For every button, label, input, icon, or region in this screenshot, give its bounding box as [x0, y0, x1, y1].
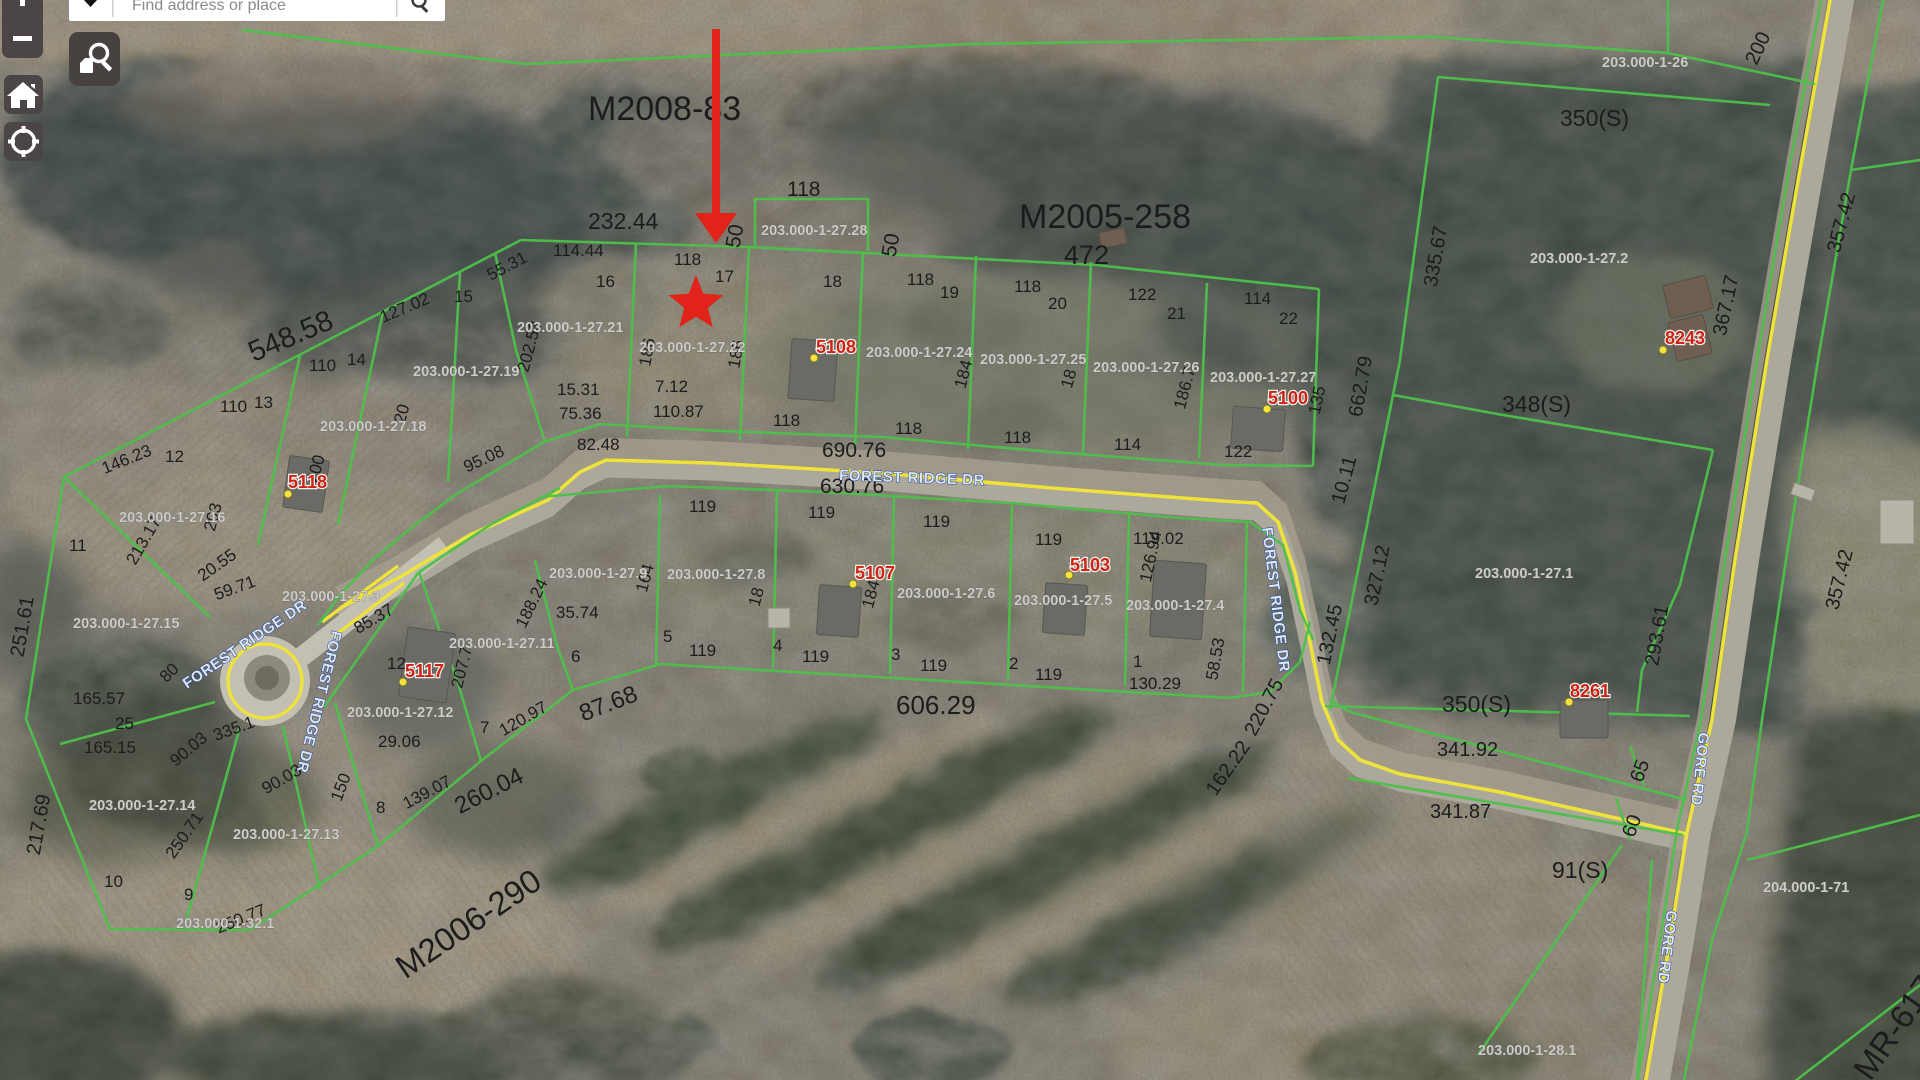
svg-text:75.36: 75.36	[559, 404, 602, 423]
svg-text:119: 119	[808, 503, 835, 522]
svg-text:29.06: 29.06	[378, 732, 421, 751]
svg-text:203.000-1-27.24: 203.000-1-27.24	[866, 345, 972, 361]
svg-text:119: 119	[689, 497, 716, 516]
svg-text:114: 114	[1244, 289, 1271, 308]
svg-text:203.000-1-27.25: 203.000-1-27.25	[980, 352, 1086, 368]
svg-text:203.000-1-27.9: 203.000-1-27.9	[549, 566, 647, 582]
svg-text:110: 110	[309, 356, 336, 375]
svg-text:203.000-1-27.26: 203.000-1-27.26	[1093, 360, 1199, 376]
svg-text:204.000-1-71: 204.000-1-71	[1763, 880, 1849, 896]
svg-text:18: 18	[823, 272, 842, 291]
svg-text:10: 10	[104, 872, 123, 891]
svg-text:203.000-1-27.11: 203.000-1-27.11	[449, 636, 555, 652]
svg-text:119: 119	[923, 512, 950, 531]
svg-text:203.000-1-27.18: 203.000-1-27.18	[320, 419, 426, 435]
svg-text:118: 118	[773, 411, 800, 430]
svg-text:7.12: 7.12	[655, 377, 688, 396]
svg-text:5: 5	[663, 627, 672, 646]
svg-text:119: 119	[689, 641, 716, 660]
svg-text:7: 7	[480, 718, 489, 737]
svg-text:11: 11	[69, 536, 87, 555]
svg-text:203.000-1-27.13: 203.000-1-27.13	[233, 827, 339, 843]
svg-text:4: 4	[773, 636, 782, 655]
svg-text:15.31: 15.31	[557, 380, 600, 399]
svg-text:21: 21	[1167, 304, 1186, 323]
svg-text:203.000-1-28.1: 203.000-1-28.1	[1478, 1043, 1576, 1059]
svg-text:203.000-1-27.14: 203.000-1-27.14	[89, 798, 195, 814]
svg-text:606.29: 606.29	[896, 690, 976, 720]
svg-text:22: 22	[1279, 309, 1298, 328]
svg-text:203.000-1-27.2: 203.000-1-27.2	[1530, 251, 1628, 267]
svg-text:118: 118	[1014, 277, 1041, 296]
svg-text:203.000-1-27.19: 203.000-1-27.19	[413, 364, 519, 380]
svg-text:232.44: 232.44	[588, 208, 659, 234]
svg-text:119: 119	[920, 656, 947, 675]
svg-text:203.000-1-26: 203.000-1-26	[1602, 55, 1688, 71]
svg-text:350(S): 350(S)	[1560, 105, 1629, 131]
svg-text:2: 2	[1009, 654, 1018, 673]
svg-text:348(S): 348(S)	[1502, 391, 1571, 417]
svg-text:690.76: 690.76	[822, 439, 886, 462]
svg-text:118: 118	[1004, 428, 1031, 447]
svg-text:118: 118	[674, 250, 701, 269]
svg-text:203.000-1-27.28: 203.000-1-27.28	[761, 223, 867, 239]
svg-text:165.57: 165.57	[73, 689, 125, 708]
svg-text:130.29: 130.29	[1129, 674, 1181, 693]
svg-text:5100: 5100	[1268, 388, 1308, 408]
svg-text:35.74: 35.74	[556, 603, 599, 622]
svg-text:118: 118	[787, 178, 820, 201]
svg-text:203.000-1-27.1: 203.000-1-27.1	[1475, 566, 1573, 582]
svg-text:9: 9	[184, 885, 193, 904]
svg-text:118: 118	[907, 270, 934, 289]
svg-text:341.87: 341.87	[1430, 801, 1491, 823]
svg-text:110.87: 110.87	[653, 402, 704, 421]
svg-text:12: 12	[165, 447, 184, 466]
svg-text:118: 118	[895, 419, 922, 438]
svg-text:12: 12	[387, 654, 406, 673]
svg-text:119: 119	[1035, 530, 1062, 549]
svg-text:3: 3	[891, 645, 900, 664]
svg-text:13: 13	[254, 393, 273, 412]
svg-text:5107: 5107	[855, 563, 895, 583]
svg-text:82.48: 82.48	[577, 435, 620, 454]
svg-text:341.92: 341.92	[1437, 739, 1498, 761]
svg-text:5108: 5108	[816, 337, 856, 357]
svg-text:203.000-1-27.22: 203.000-1-27.22	[639, 340, 745, 356]
svg-text:5118: 5118	[288, 472, 327, 492]
svg-text:114: 114	[1114, 435, 1141, 454]
svg-text:M2005-258: M2005-258	[1019, 198, 1191, 236]
svg-text:203.000-1-27.16: 203.000-1-27.16	[119, 510, 225, 526]
svg-text:203.000-1-27.6: 203.000-1-27.6	[897, 586, 995, 602]
svg-text:119: 119	[802, 647, 829, 666]
svg-text:5117: 5117	[405, 661, 444, 681]
svg-text:203.000-1-27.27: 203.000-1-27.27	[1210, 370, 1316, 386]
svg-text:472: 472	[1064, 240, 1109, 270]
svg-text:350(S): 350(S)	[1442, 691, 1511, 717]
svg-text:110: 110	[220, 397, 247, 416]
svg-text:203.000-1-32.1: 203.000-1-32.1	[176, 916, 274, 932]
svg-text:17: 17	[715, 267, 734, 286]
svg-text:25: 25	[115, 714, 134, 733]
svg-text:1: 1	[1133, 652, 1142, 671]
svg-text:122: 122	[1128, 285, 1156, 304]
svg-text:203.000-1-27.5: 203.000-1-27.5	[1014, 593, 1112, 609]
svg-text:6: 6	[571, 647, 580, 666]
svg-text:114.44: 114.44	[553, 241, 604, 260]
svg-text:119: 119	[1035, 665, 1062, 684]
svg-text:Find address or place: Find address or place	[132, 0, 286, 14]
svg-text:14: 14	[347, 350, 366, 369]
svg-text:16: 16	[596, 272, 615, 291]
svg-text:203.000-1-27.21: 203.000-1-27.21	[517, 320, 623, 336]
svg-text:203.000-1-27.15: 203.000-1-27.15	[73, 616, 179, 632]
svg-text:203.000-1-27.8: 203.000-1-27.8	[667, 567, 765, 583]
svg-text:50: 50	[878, 232, 905, 259]
svg-text:19: 19	[940, 283, 959, 302]
svg-text:8243: 8243	[1665, 328, 1705, 348]
svg-text:8261: 8261	[1570, 681, 1610, 701]
svg-text:122: 122	[1224, 442, 1252, 461]
svg-text:203.000-1-27.12: 203.000-1-27.12	[347, 705, 453, 721]
svg-text:5103: 5103	[1070, 555, 1110, 575]
svg-text:91(S): 91(S)	[1552, 857, 1608, 883]
svg-text:20: 20	[1048, 294, 1067, 313]
svg-text:165.15: 165.15	[84, 738, 136, 757]
svg-text:15: 15	[454, 287, 473, 306]
svg-text:203.000-1-27.4: 203.000-1-27.4	[1126, 598, 1224, 614]
svg-text:8: 8	[376, 798, 385, 817]
